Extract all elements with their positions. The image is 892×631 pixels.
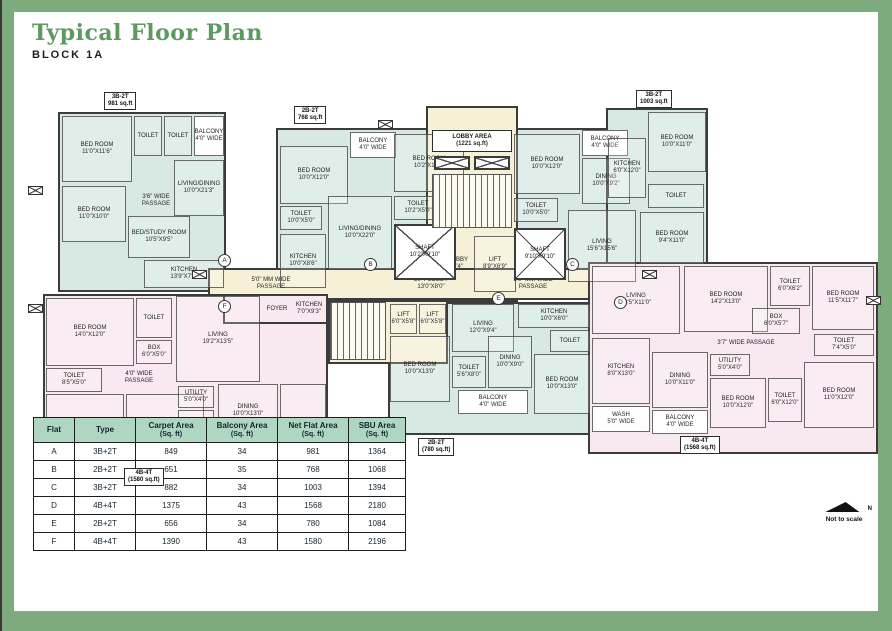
- room-label: LIVING/DINING10'0"X22'0": [328, 196, 392, 270]
- table-cell: 1580: [278, 532, 349, 550]
- shaft: SHAFT9'10"X9'10": [514, 228, 566, 280]
- table-row: D4B+4T13754315682180: [34, 496, 406, 514]
- plan-sheet: Typical Floor Plan BLOCK 1A BED ROOM11'0…: [14, 12, 878, 611]
- room-label: WASH5'0" WIDE: [592, 406, 650, 432]
- table-cell: 34: [207, 478, 278, 496]
- compass: N Not to scale: [816, 502, 872, 523]
- table-row: A3B+2T849349811364: [34, 442, 406, 460]
- room-label: TOILET6'0"X6'2": [770, 266, 810, 306]
- room-label: TOILET: [164, 116, 192, 156]
- page-title: Typical Floor Plan: [32, 20, 263, 46]
- table-cell: 1068: [349, 460, 406, 478]
- room-label: BED ROOM10'0"X11'0": [648, 112, 706, 172]
- room-label: TOILET10'0"X5'0": [280, 206, 322, 230]
- room-label: TOILET: [134, 116, 162, 156]
- table-row: E2B+2T656347801084: [34, 514, 406, 532]
- table-cell: 2B+2T: [75, 514, 136, 532]
- table-cell: 1364: [349, 442, 406, 460]
- room-label: BED ROOM10'0"X12'0": [710, 378, 766, 428]
- room-label: TOILET7'4"X5'0": [814, 334, 874, 356]
- table-cell: 1375: [136, 496, 207, 514]
- room-label: TOILET: [648, 184, 704, 208]
- flat-area-tag: 3B-2T1003 sq.ft: [636, 90, 672, 108]
- table-header-cell: Flat: [34, 418, 75, 443]
- table-cell: 2196: [349, 532, 406, 550]
- room-label: BED ROOM14'0"X12'0": [46, 298, 134, 366]
- room-label: TOILET8'5"X5'0": [46, 368, 102, 392]
- room-label: BED ROOM11'0"X12'0": [804, 362, 874, 428]
- brochure-page: { "page": { "title": "Typical Floor Plan…: [0, 0, 892, 631]
- table-cell: 768: [278, 460, 349, 478]
- table-cell: D: [34, 496, 75, 514]
- table-cell: 1003: [278, 478, 349, 496]
- room-label: 3'6" WIDEPASSAGE: [128, 190, 184, 212]
- room-label: TOILET5'6"X8'0": [452, 356, 486, 388]
- entry-marker-A: A: [218, 254, 231, 267]
- room-label: TOILET10'0"X5'0": [514, 198, 558, 222]
- table-cell: B: [34, 460, 75, 478]
- block-subtitle: BLOCK 1A: [32, 49, 263, 61]
- table-cell: C: [34, 478, 75, 496]
- room-label: BALCONY4'0" WIDE: [350, 132, 396, 158]
- entry-marker-B: B: [364, 258, 377, 271]
- grid-marker: [642, 270, 657, 279]
- room-label: 3'7" WIDE PASSAGE: [696, 336, 796, 350]
- table-cell: 1390: [136, 532, 207, 550]
- not-to-scale-note: Not to scale: [816, 516, 872, 523]
- room-label: KITCHEN10'0"X6'0": [518, 304, 590, 328]
- entry-marker-F: F: [218, 300, 231, 313]
- flat-area-tag: 4B-4T(1568 sq.ft): [680, 436, 720, 454]
- table-row: F4B+4T13904315802196: [34, 532, 406, 550]
- grid-marker: [28, 304, 43, 313]
- room-label: BALCONY4'0" WIDE: [458, 390, 528, 414]
- shaft: [474, 156, 510, 170]
- room-label: BED ROOM10'0"X13'0": [534, 354, 590, 414]
- staircase: [330, 302, 386, 360]
- grid-marker: [192, 270, 207, 279]
- room-label: UTILITY5'0"X4'0": [710, 354, 750, 376]
- table-cell: 656: [136, 514, 207, 532]
- room-label: BED ROOM11'5"X11'7": [812, 266, 874, 330]
- room-label: 4'0" WIDEPASSAGE: [106, 366, 172, 390]
- room-label: BED ROOM9'4"X11'0": [640, 212, 704, 264]
- table-cell: F: [34, 532, 75, 550]
- room-label: BED ROOM11'0"X10'0": [62, 186, 126, 242]
- table-header-cell: Net Flat Area(Sq. ft): [278, 418, 349, 443]
- room-label: LOBBY AREA(1221 sq.ft): [432, 130, 512, 152]
- table-cell: 849: [136, 442, 207, 460]
- table-cell: 43: [207, 532, 278, 550]
- room-label: KITCHEN6'0"X12'0": [608, 138, 646, 198]
- table-cell: 43: [207, 496, 278, 514]
- flat-area-tag: 4B-4T(1580 sq.ft): [124, 468, 164, 486]
- shaft: [434, 156, 470, 170]
- table-header-cell: Carpet Area(Sq. ft): [136, 418, 207, 443]
- north-arrow-icon: [825, 502, 862, 512]
- room-label: BED/STUDY ROOM10'5"X9'5": [128, 216, 190, 258]
- room-label: BALCONY4'0" WIDE: [194, 116, 224, 156]
- entry-marker-E: E: [492, 292, 505, 305]
- table-cell: 780: [278, 514, 349, 532]
- table-cell: 2180: [349, 496, 406, 514]
- table-cell: 3B+2T: [75, 442, 136, 460]
- area-statement-table: FlatTypeCarpet Area(Sq. ft)Balcony Area(…: [33, 417, 406, 551]
- table-body: A3B+2T849349811364B2B+2T651357681068C3B+…: [34, 442, 406, 550]
- table-cell: 4B+4T: [75, 532, 136, 550]
- room-label: DINING10'0"X9'0": [488, 336, 532, 388]
- room-label: LIVING18'5"X11'0": [592, 266, 680, 334]
- room-label: TOILET: [136, 298, 172, 338]
- flat-area-tag: 2B-2T(780 sq.ft): [418, 438, 454, 456]
- room-label: KITCHEN7'0"X9'3": [292, 296, 326, 322]
- table-cell: 1394: [349, 478, 406, 496]
- room-label: TOILET: [550, 330, 590, 352]
- table-cell: 34: [207, 514, 278, 532]
- staircase: [432, 174, 512, 228]
- room-label: BALCONY4'0" WIDE: [652, 410, 708, 434]
- entry-marker-C: C: [566, 258, 579, 271]
- room-label: BOX6'0"X5'7": [752, 308, 800, 334]
- header: Typical Floor Plan BLOCK 1A: [32, 20, 263, 61]
- grid-marker: [28, 186, 43, 195]
- page-edge-line: [0, 0, 2, 631]
- room-label: BED ROOM11'0"X11'6": [62, 116, 132, 182]
- table-header-cell: Type: [75, 418, 136, 443]
- table-cell: 981: [278, 442, 349, 460]
- table-header-cell: Balcony Area(Sq. ft): [207, 418, 278, 443]
- flat-area-tag: 3B-2T981 sq.ft: [104, 92, 136, 110]
- table-header: FlatTypeCarpet Area(Sq. ft)Balcony Area(…: [34, 418, 406, 443]
- table-header-cell: SBU Area(Sq. ft): [349, 418, 406, 443]
- table-cell: 35: [207, 460, 278, 478]
- table-cell: 4B+4T: [75, 496, 136, 514]
- room-label: KITCHEN13'9"X7'0": [144, 260, 224, 288]
- room-label: FOYER: [262, 298, 292, 320]
- room-label: BOX6'0"X5'0": [136, 340, 172, 364]
- table-row: B2B+2T651357681068: [34, 460, 406, 478]
- grid-marker: [378, 120, 393, 129]
- room-label: 5'0" MM WIDEPASSAGE: [234, 272, 308, 296]
- grid-marker: [866, 296, 881, 305]
- table-cell: 34: [207, 442, 278, 460]
- flat-area-tag: 2B-2T768 sq.ft: [294, 106, 326, 124]
- room-label: TOILET6'0"X12'0": [768, 378, 802, 422]
- table-cell: E: [34, 514, 75, 532]
- room-label: LIFT6'0"X5'8": [419, 304, 446, 334]
- entry-marker-D: D: [614, 296, 627, 309]
- shaft: SHAFT10'2"X9'10": [394, 224, 456, 280]
- table-cell: 1084: [349, 514, 406, 532]
- room-label: UTILITY5'0"X4'0": [178, 386, 214, 408]
- room-label: BED ROOM10'0"X13'0": [390, 336, 450, 402]
- room-label: KITCHEN8'0"X13'0": [592, 338, 650, 404]
- room-label: BED ROOM10'0"X12'0": [514, 134, 580, 194]
- table-cell: A: [34, 442, 75, 460]
- room-label: DINING10'0"X11'0": [652, 352, 708, 408]
- table-row: C3B+2T8823410031394: [34, 478, 406, 496]
- table-cell: 1568: [278, 496, 349, 514]
- room-label: LIFT6'0"X5'8": [390, 304, 417, 334]
